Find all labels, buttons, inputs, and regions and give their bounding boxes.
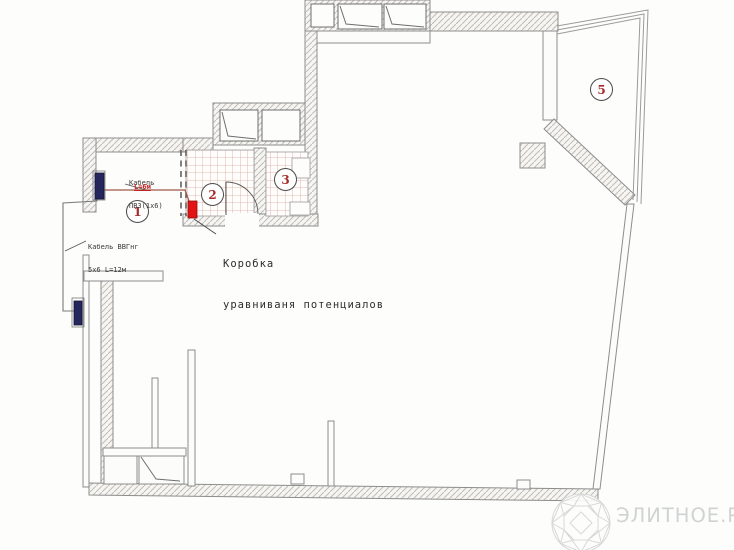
cable-pv3-length: L=6м <box>134 183 151 191</box>
potential-box-label: Коробка уравниваня потенциалов <box>223 231 384 339</box>
room-5-circle: 5 <box>590 78 613 101</box>
bathroom-3-step <box>290 202 310 215</box>
cable-vvg-label: Кабель ВВГнг 5х6 L=12м <box>88 229 139 289</box>
potential-equalization-box <box>188 201 197 218</box>
closet-box-left <box>104 456 137 484</box>
room-2-circle: 2 <box>201 183 224 206</box>
potential-box-label-line1: Коробка <box>223 258 384 272</box>
partition-1 <box>152 378 158 452</box>
cable-vvg-label-line1: Кабель ВВГнг <box>88 244 139 252</box>
vent-shaft <box>262 110 300 141</box>
dashed-opening <box>181 150 186 216</box>
partition-2 <box>188 350 195 486</box>
shelf-wall <box>103 448 186 456</box>
watermark-text: ЭЛИТНОЕ.РУ <box>616 504 734 527</box>
top-wall-inner-band <box>306 31 430 43</box>
cable-vvg-label-line2: 5х6 L=12м <box>88 267 139 275</box>
electric-panel-2 <box>74 301 82 325</box>
diamond-logo-icon <box>552 494 610 550</box>
room-2-number: 2 <box>208 188 216 202</box>
bottom-wall-notch-1 <box>291 474 304 484</box>
column <box>520 143 545 168</box>
cable-pv3-label-line2: ПВ3(1х6) <box>129 203 163 211</box>
top-wall-right <box>430 12 558 31</box>
floor-plan-page: 1 2 3 5 Кабель ПВ3(1х6) L=6м Кабель ВВГн… <box>0 0 734 550</box>
vent-shaft <box>311 4 334 27</box>
cable-pv3-label: Кабель ПВ3(1х6) <box>129 165 163 225</box>
balcony-diagonal-wall <box>544 119 635 205</box>
hallway-top-wall <box>96 138 183 152</box>
room-3-number: 3 <box>281 173 289 187</box>
room-5-number: 5 <box>597 83 605 97</box>
partition-stub <box>328 421 334 486</box>
electric-panel-1 <box>95 173 104 199</box>
bath-middle-wall <box>254 148 266 218</box>
balcony-left-pier <box>543 31 557 120</box>
bottom-wall-notch-2 <box>517 480 530 489</box>
potential-box-label-line2: уравниваня потенциалов <box>223 299 384 313</box>
door-opening <box>225 213 259 227</box>
leader-cable-vvg <box>65 241 86 251</box>
left-outer-wall <box>83 255 89 487</box>
room-3-circle: 3 <box>274 168 297 191</box>
right-slanted-wall <box>593 204 634 489</box>
